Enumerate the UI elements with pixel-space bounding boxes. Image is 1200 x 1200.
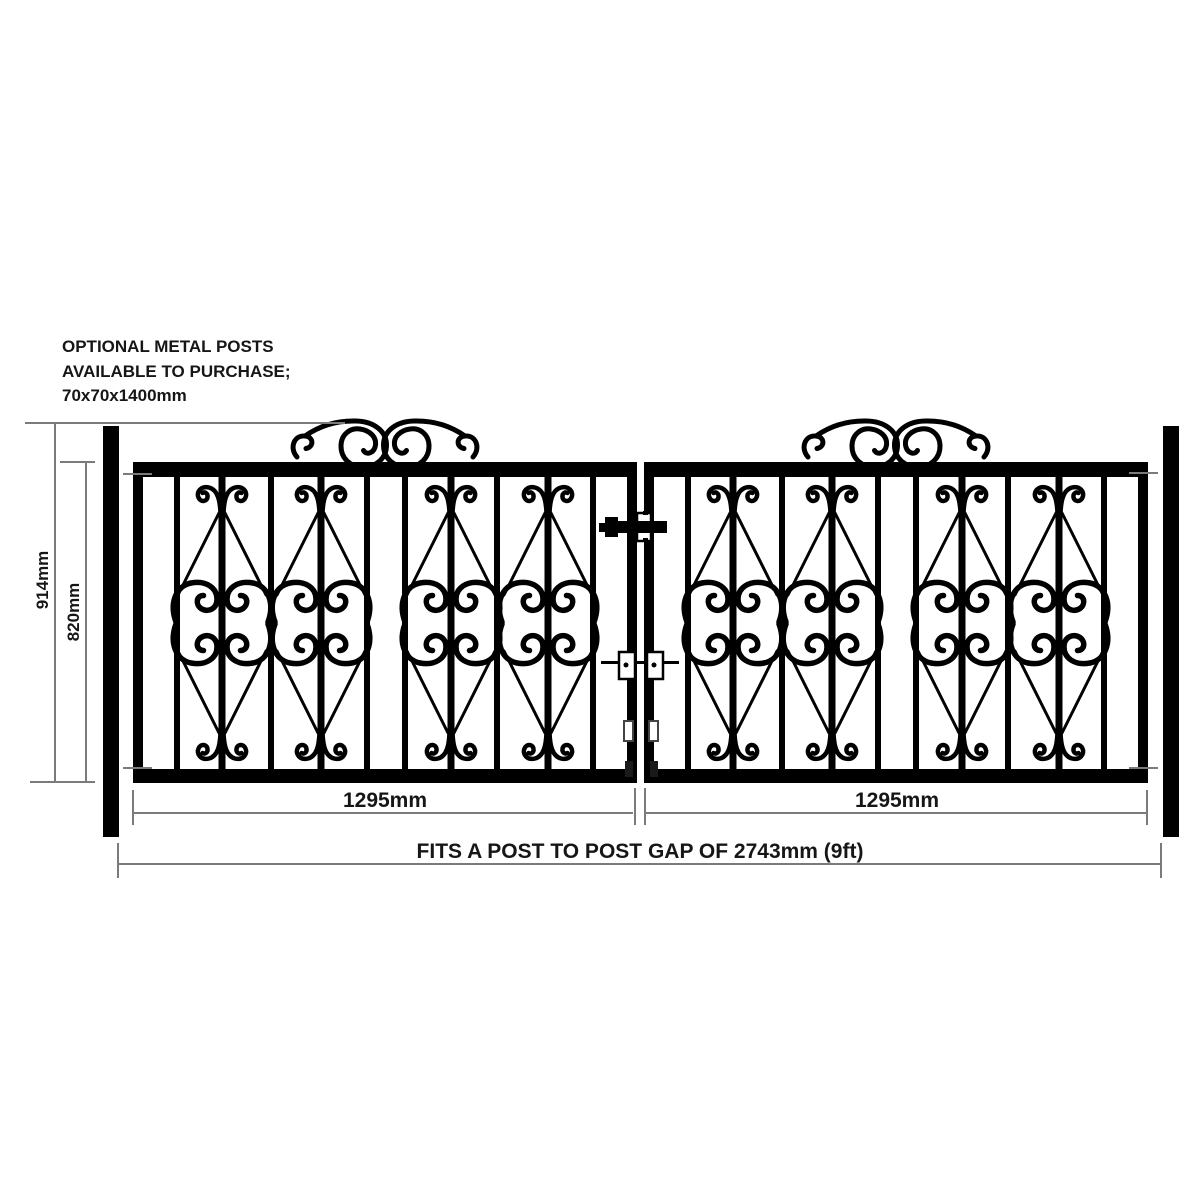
optional-posts-note-line1: OPTIONAL METAL POSTS <box>62 337 274 356</box>
lock-spindle <box>601 661 679 664</box>
optional-posts-note-line3: 70x70x1400mm <box>62 386 187 405</box>
drop-bolt-right <box>650 761 658 777</box>
lock-keyhole-left <box>624 663 629 668</box>
overall-height-label: 914mm <box>33 551 52 610</box>
post-gap-label: FITS A POST TO POST GAP OF 2743mm (9ft) <box>417 840 864 863</box>
latch-screw-top <box>643 511 648 515</box>
latch-screw-bottom <box>643 538 648 542</box>
frame-height-label: 820mm <box>64 583 83 642</box>
right-metal-post <box>1163 426 1179 837</box>
right-leaf-width-label: 1295mm <box>855 789 939 812</box>
latch-slide-bar <box>611 521 667 533</box>
bolt-guide-right <box>649 721 658 741</box>
drop-bolt-left <box>625 761 633 777</box>
bolt-guide-left <box>624 721 633 741</box>
diagram-canvas: OPTIONAL METAL POSTS AVAILABLE TO PURCHA… <box>0 0 1200 1200</box>
lock-keyhole-right <box>652 663 657 668</box>
gate-dimension-diagram: OPTIONAL METAL POSTS AVAILABLE TO PURCHA… <box>0 0 1200 1200</box>
left-leaf-width-label: 1295mm <box>343 789 427 812</box>
left-metal-post <box>103 426 119 837</box>
optional-posts-note-line2: AVAILABLE TO PURCHASE; <box>62 362 291 381</box>
